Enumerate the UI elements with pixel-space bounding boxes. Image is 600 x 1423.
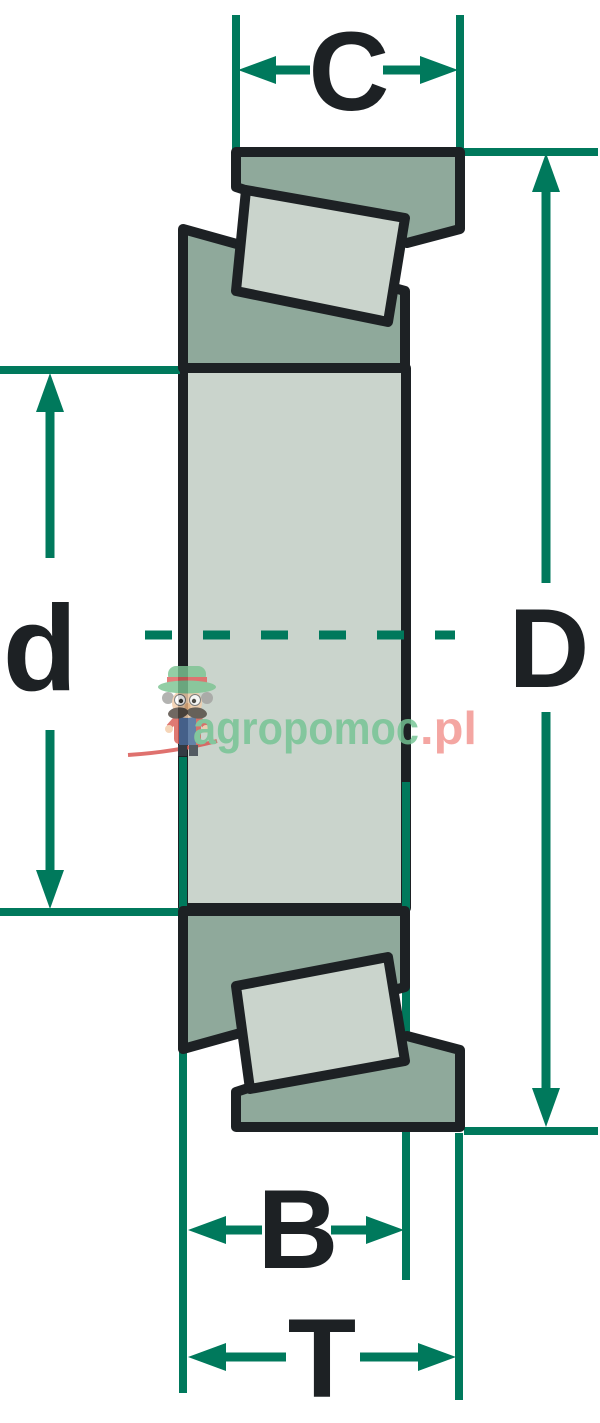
- bearing-dimension-diagram: C D d B T: [0, 0, 600, 1423]
- diagram-canvas: C D d B T: [0, 0, 600, 1423]
- mascot-pupil-left: [179, 699, 183, 703]
- label-total-width: T: [288, 1296, 356, 1421]
- watermark-brand-primary: agropomoc: [193, 702, 419, 754]
- watermark-brand: agropomoc.pl: [193, 702, 477, 754]
- label-cup-width: C: [309, 9, 390, 134]
- label-cone-width: B: [258, 1167, 339, 1292]
- d-bore-arrowhead-down-icon: [36, 870, 64, 909]
- mascot-hat-brim: [158, 681, 216, 694]
- t-arrowhead-right-icon: [418, 1343, 456, 1371]
- watermark-brand-suffix: .pl: [420, 702, 477, 754]
- label-bore-diameter: d: [3, 580, 78, 716]
- c-arrowhead-left-icon: [238, 56, 276, 84]
- d-outer-arrowhead-up-icon: [532, 153, 560, 192]
- roller-bottom: [236, 957, 405, 1089]
- mascot-hand-left: [165, 725, 173, 733]
- label-outer-diameter: D: [509, 586, 590, 711]
- b-arrowhead-left-icon: [188, 1216, 226, 1244]
- d-bore-arrowhead-up-icon: [36, 373, 64, 412]
- b-arrowhead-right-icon: [366, 1216, 404, 1244]
- mascot-boot-left: [178, 745, 187, 756]
- t-arrowhead-left-icon: [188, 1343, 226, 1371]
- d-outer-arrowhead-down-icon: [532, 1088, 560, 1127]
- c-arrowhead-right-icon: [420, 56, 458, 84]
